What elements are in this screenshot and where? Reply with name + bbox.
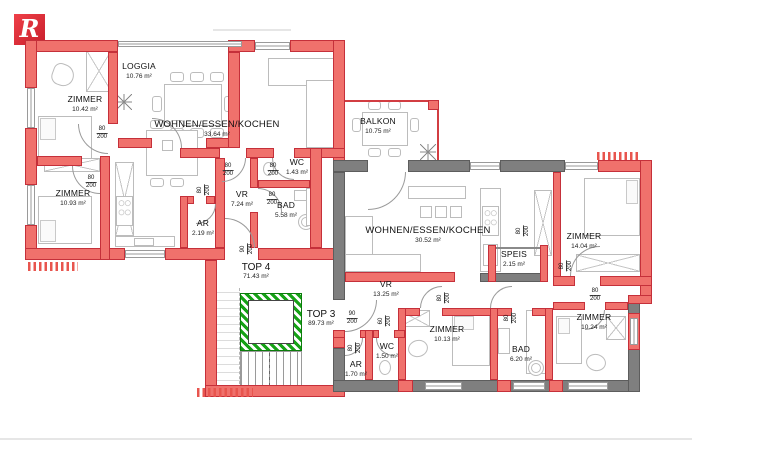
room-label-zimmer-t3-2: ZIMMER 10.13 m² xyxy=(430,325,465,343)
room-name: LOGGIA xyxy=(122,62,156,71)
unit-name: TOP 3 xyxy=(307,310,336,320)
room-name: AR xyxy=(345,360,367,369)
room-label-zimmer-t4-1: ZIMMER 10.42 m² xyxy=(68,95,103,113)
room-label-zimmer-t3-3: ZIMMER 10.24 m² xyxy=(577,313,612,331)
wall-segment xyxy=(37,156,82,166)
wall-segment xyxy=(545,308,553,380)
furniture-crib xyxy=(584,352,607,373)
room-area: 30.52 m² xyxy=(365,237,490,244)
room-area: 2.15 m² xyxy=(501,261,527,268)
insulation-hatch xyxy=(597,152,639,160)
room-name: ZIMMER xyxy=(567,232,602,241)
room-area: 10.13 m² xyxy=(430,336,465,343)
window xyxy=(27,88,35,128)
furniture-vanity xyxy=(498,328,510,354)
room-name: ZIMMER xyxy=(68,95,103,104)
furniture-pillow xyxy=(40,118,56,140)
room-name: VR xyxy=(373,280,399,289)
wall-segment xyxy=(490,308,498,380)
room-area: 6.20 m² xyxy=(510,356,532,363)
room-name: BAD xyxy=(275,201,297,210)
window xyxy=(425,382,462,390)
wall-segment xyxy=(246,148,274,158)
unit-area: 71.43 m² xyxy=(242,273,271,280)
furniture-chair xyxy=(152,96,162,112)
room-label-bad-t3: BAD 6.20 m² xyxy=(510,345,532,363)
unit-name: TOP 4 xyxy=(242,263,271,273)
wall-segment xyxy=(553,276,575,286)
wall-segment xyxy=(600,276,652,286)
wall-segment xyxy=(205,260,217,397)
furniture-chair xyxy=(49,61,77,89)
room-name: AR xyxy=(192,219,214,228)
wall-segment xyxy=(108,52,118,124)
door-size-label: 80200 xyxy=(268,163,279,177)
room-label-vr-t4: VR 7.24 m² xyxy=(231,190,253,208)
room-label-ar-t4: AR 2.19 m² xyxy=(192,219,214,237)
door-size-label: 80200 xyxy=(559,261,573,272)
floor-plan-canvas: R xyxy=(0,0,770,456)
room-label-bad-t4: BAD 5.58 m² xyxy=(275,201,297,219)
furniture-chair xyxy=(210,72,224,82)
window xyxy=(513,382,545,390)
room-area: 33.64 m² xyxy=(154,131,279,138)
furniture-stove xyxy=(116,196,133,226)
door-size-label: 90200 xyxy=(347,311,358,325)
room-label-wek-t3: WOHNEN/ESSEN/KOCHEN 30.52 m² xyxy=(365,226,490,244)
room-name: BAD xyxy=(510,345,532,354)
north-star-icon xyxy=(116,94,132,110)
furniture-sofa xyxy=(306,80,334,148)
window xyxy=(27,185,35,225)
wall-segment xyxy=(442,308,493,316)
wall-segment xyxy=(553,302,585,310)
room-area: 10.75 m² xyxy=(360,128,396,135)
unit-label-top3: TOP 3 89.73 m² xyxy=(307,310,336,327)
room-area: 10.42 m² xyxy=(68,106,103,113)
room-name: WC xyxy=(376,342,398,351)
room-area: 2.19 m² xyxy=(192,230,214,237)
wall-segment xyxy=(165,248,225,260)
wall-segment xyxy=(118,138,152,148)
room-area: 5.58 m² xyxy=(275,212,297,219)
room-area: 10.76 m² xyxy=(122,73,156,80)
room-name: ZIMMER xyxy=(56,189,91,198)
window xyxy=(568,382,608,390)
roof-outline-line xyxy=(213,29,291,31)
furniture-toilet xyxy=(379,360,391,375)
wall-segment xyxy=(540,245,548,282)
door-size-label: 80200 xyxy=(504,313,518,324)
wall-segment xyxy=(333,40,345,162)
wall-segment xyxy=(373,330,379,338)
wall-segment xyxy=(605,302,628,310)
wall-segment xyxy=(488,245,496,282)
furniture-crib xyxy=(406,338,430,360)
wall-segment xyxy=(310,148,322,248)
door-arc xyxy=(490,286,512,308)
room-area: 1.70 m² xyxy=(345,371,367,378)
room-area: 10.24 m² xyxy=(577,324,612,331)
wall-segment xyxy=(497,380,511,392)
wall-segment xyxy=(333,172,345,300)
wall-segment xyxy=(398,308,406,380)
logo-letter: R xyxy=(20,17,40,41)
furniture-sofa xyxy=(345,254,421,272)
wall-segment xyxy=(333,160,368,172)
window xyxy=(630,318,638,345)
door-size-label: 80200 xyxy=(267,192,278,206)
wall-segment xyxy=(398,380,413,392)
room-area: 10.93 m² xyxy=(56,200,91,207)
room-name: ZIMMER xyxy=(577,313,612,322)
room-label-zimmer-t3-1: ZIMMER 14.04 m² xyxy=(567,232,602,250)
furniture-chair xyxy=(150,178,164,187)
door-size-label: 80200 xyxy=(590,288,601,302)
door-size-label: 80200 xyxy=(437,293,451,304)
room-label-wek-t4: WOHNEN/ESSEN/KOCHEN 33.64 m² xyxy=(154,120,279,138)
room-label-balkon: BALKON 10.75 m² xyxy=(360,117,396,135)
door-size-label: 80200 xyxy=(197,185,211,196)
wall-segment xyxy=(25,40,37,88)
room-name: WOHNEN/ESSEN/KOCHEN xyxy=(154,120,279,129)
window xyxy=(255,42,290,50)
room-label-vr-t3: VR 13.25 m² xyxy=(373,280,399,298)
wall-segment xyxy=(206,196,215,204)
wall-segment xyxy=(258,180,310,188)
elevator-cabin xyxy=(248,300,294,344)
room-label-zimmer-t4-2: ZIMMER 10.93 m² xyxy=(56,189,91,207)
door-size-label: 80200 xyxy=(97,126,108,140)
door-size-label: 80200 xyxy=(348,343,362,354)
room-name: SPEIS xyxy=(501,250,527,259)
furniture-sink xyxy=(134,238,154,246)
wall-segment xyxy=(408,160,470,172)
furniture-pillow xyxy=(626,180,638,204)
furniture-pillow xyxy=(558,318,570,334)
door-size-label: 80200 xyxy=(86,175,97,189)
room-area: 14.04 m² xyxy=(567,243,602,250)
wall-segment xyxy=(549,380,563,392)
door-size-label: 80200 xyxy=(516,226,530,237)
wall-segment xyxy=(25,248,125,260)
door-arc xyxy=(570,246,600,276)
bottom-divider-line xyxy=(0,438,692,440)
room-label-wc-t4: WC 1.43 m² xyxy=(286,158,308,176)
unit-area: 89.73 m² xyxy=(307,320,336,327)
window xyxy=(470,162,500,170)
room-name: BALKON xyxy=(360,117,396,126)
wall-segment xyxy=(258,248,345,260)
door-size-label: 60200 xyxy=(378,316,392,327)
wall-segment xyxy=(180,148,220,158)
room-label-ar-t3: AR 1.70 m² xyxy=(345,360,367,378)
unit-label-top4: TOP 4 71.43 m² xyxy=(242,263,271,280)
wall-segment xyxy=(500,160,565,172)
furniture-sideboard xyxy=(408,186,466,199)
wall-segment xyxy=(333,330,345,338)
room-name: ZIMMER xyxy=(430,325,465,334)
furniture-pillow xyxy=(40,220,56,242)
room-name: VR xyxy=(231,190,253,199)
furniture-chair xyxy=(170,178,184,187)
wall-segment xyxy=(100,156,110,260)
room-area: 7.24 m² xyxy=(231,201,253,208)
furniture-stool xyxy=(450,206,462,218)
wall-segment xyxy=(394,330,405,338)
room-area: 13.25 m² xyxy=(373,291,399,298)
room-name: WC xyxy=(286,158,308,167)
wall-segment xyxy=(180,196,188,248)
furniture-stool xyxy=(420,206,432,218)
furniture-stool xyxy=(435,206,447,218)
wall-segment xyxy=(25,40,118,52)
wall-segment xyxy=(25,128,37,185)
window xyxy=(125,250,165,258)
wall-segment xyxy=(345,272,455,282)
wall-segment xyxy=(250,158,258,188)
door-size-label: 80200 xyxy=(223,163,234,177)
room-label-loggia: LOGGIA 10.76 m² xyxy=(122,62,156,80)
room-name: WOHNEN/ESSEN/KOCHEN xyxy=(365,226,490,235)
furniture-chair xyxy=(190,72,204,82)
insulation-hatch xyxy=(28,262,78,271)
room-label-wc-t3: WC 1.50 m² xyxy=(376,342,398,360)
loggia-opening xyxy=(118,41,242,47)
room-area: 1.50 m² xyxy=(376,353,398,360)
room-label-speis: SPEIS 2.15 m² xyxy=(501,250,527,268)
furniture-chair xyxy=(170,72,184,82)
door-size-label: 90200 xyxy=(240,244,254,255)
room-area: 1.43 m² xyxy=(286,169,308,176)
insulation-hatch xyxy=(197,388,253,397)
window xyxy=(565,162,598,170)
door-arc xyxy=(368,172,406,210)
wall-segment xyxy=(628,295,652,304)
wall-segment xyxy=(428,100,439,110)
